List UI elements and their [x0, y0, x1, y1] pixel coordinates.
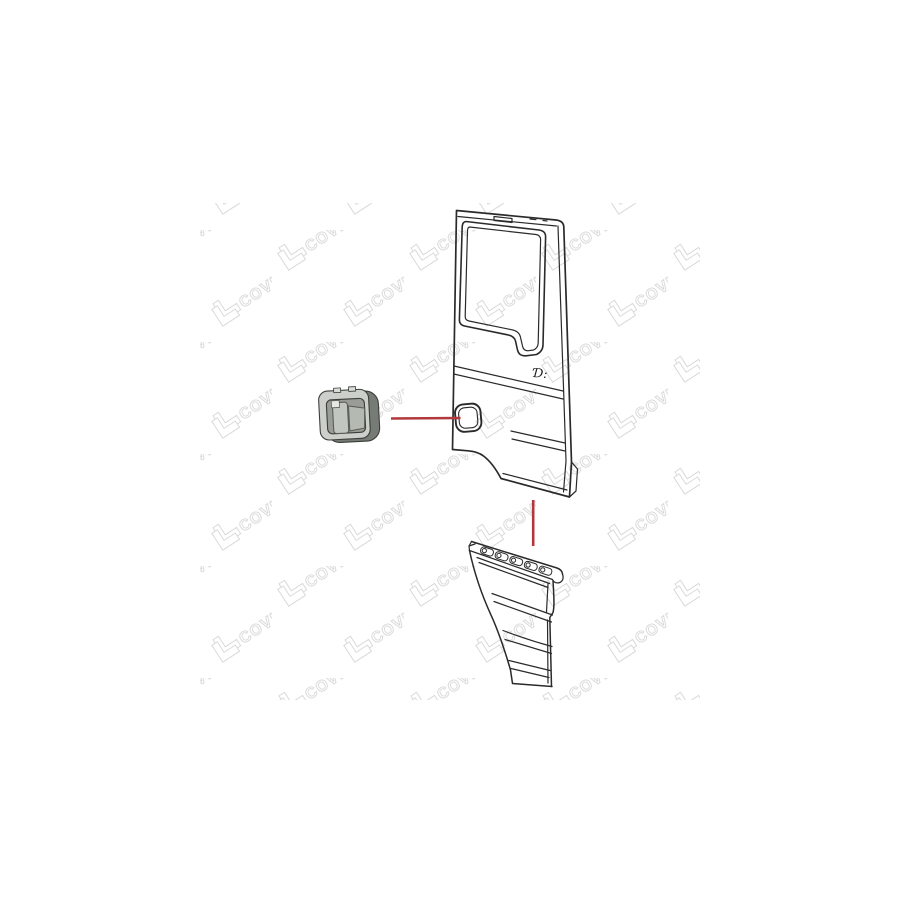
door-handle-drawing — [318, 385, 380, 443]
page: COVIND COVIND — [0, 0, 900, 900]
watermark-layer — [200, 203, 700, 700]
handle-top-boss — [334, 388, 341, 393]
handle-flap — [348, 405, 365, 431]
door-emblem: Ɗ: — [532, 365, 548, 381]
handle-top-boss — [348, 387, 355, 392]
product-image: COVIND COVIND — [0, 0, 900, 900]
callout-line-handle — [391, 418, 461, 419]
handle-key-square — [331, 400, 339, 407]
